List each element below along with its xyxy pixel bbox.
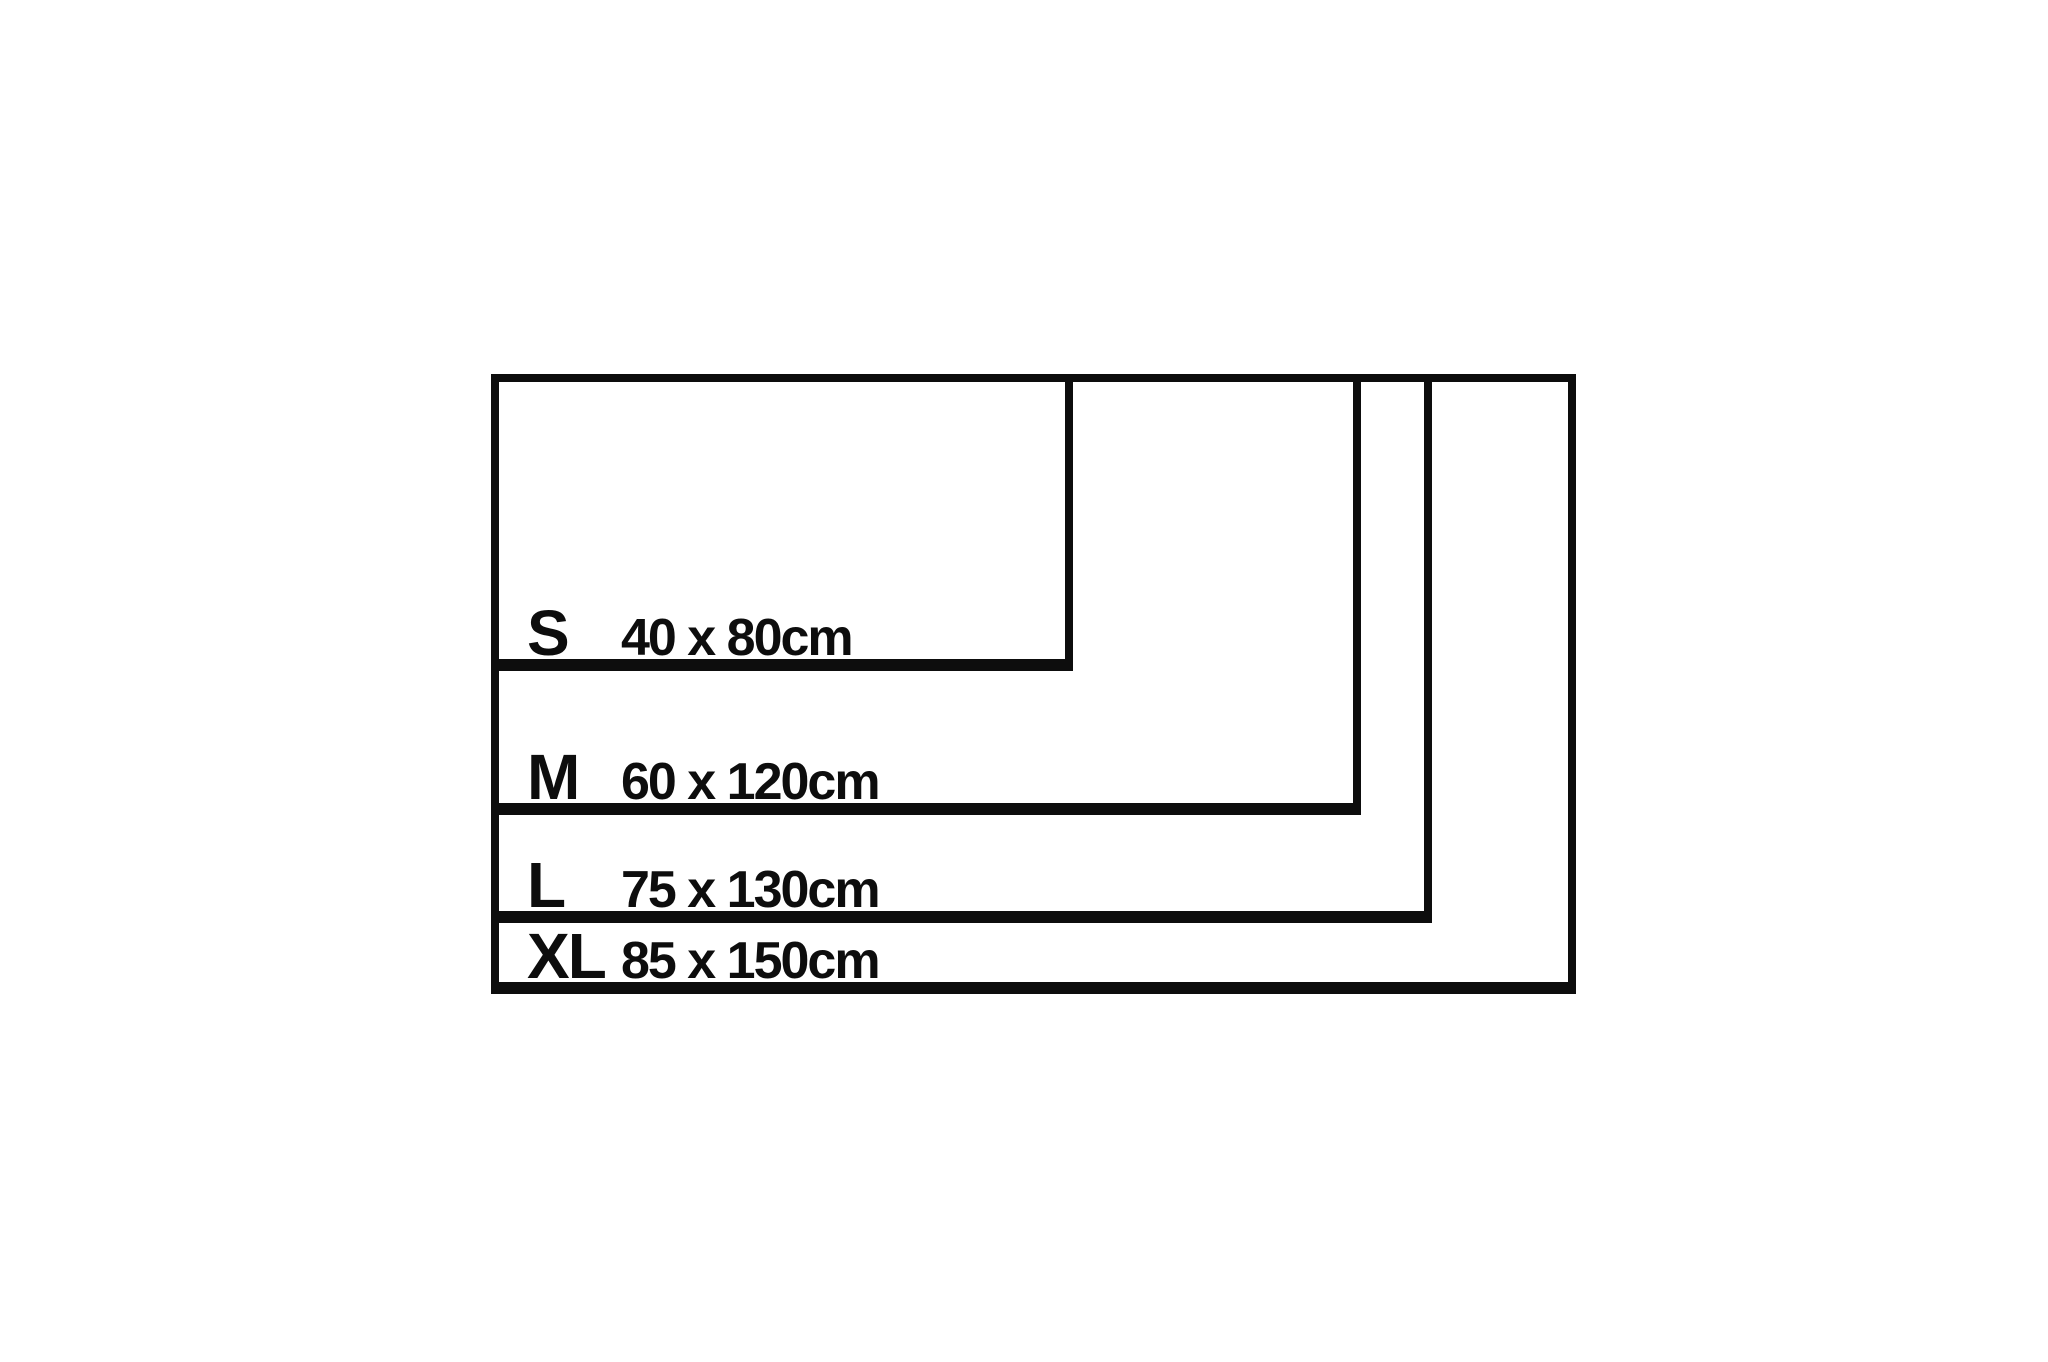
- size-dimensions-s: 40 x 80cm: [621, 612, 852, 664]
- size-label-row-s: S 40 x 80cm: [527, 601, 852, 665]
- size-dimensions-xl: 85 x 150cm: [621, 935, 879, 987]
- size-dimensions-l: 75 x 130cm: [621, 864, 879, 916]
- size-chart-diagram: S 40 x 80cm M 60 x 120cm L 75 x 130cm XL…: [0, 0, 2048, 1362]
- size-label-row-m: M 60 x 120cm: [527, 745, 879, 809]
- size-label-row-l: L 75 x 130cm: [527, 853, 879, 917]
- size-dimensions-m: 60 x 120cm: [621, 756, 879, 808]
- size-label-row-xl: XL 85 x 150cm: [527, 924, 879, 988]
- size-letter-l: L: [527, 853, 621, 917]
- size-letter-s: S: [527, 601, 621, 665]
- size-letter-xl: XL: [527, 924, 621, 988]
- size-letter-m: M: [527, 745, 621, 809]
